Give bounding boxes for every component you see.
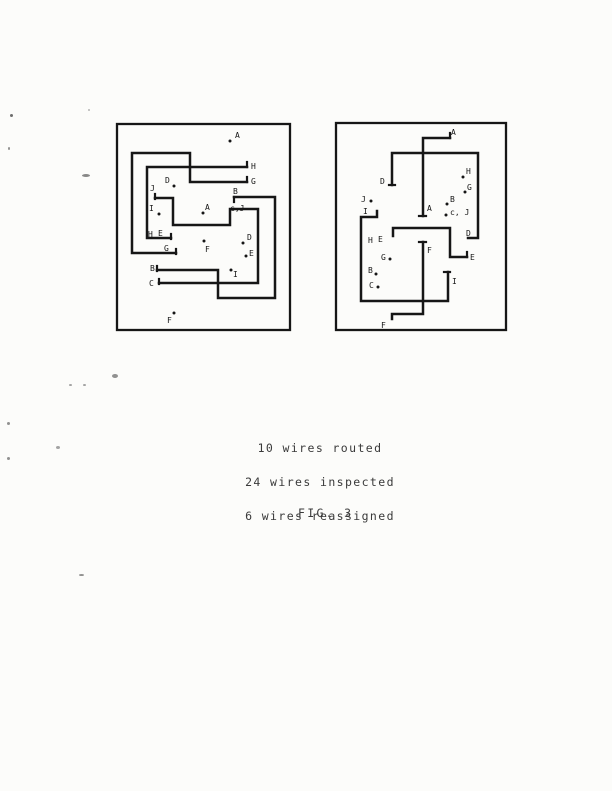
- pin-label: G: [381, 253, 386, 262]
- figure-caption: 10 wires routed 24 wires inspected 6 wir…: [237, 420, 403, 545]
- pin-label: A: [235, 131, 240, 140]
- pin-dot: [173, 185, 176, 188]
- figure-number: FIG. 3: [298, 506, 353, 520]
- pin-label: I: [452, 277, 457, 286]
- pin-label: C: [149, 279, 154, 288]
- pin-label: A: [451, 128, 456, 137]
- scanned-paper-page: AHGDJIBAc,JHEGBCFDEIFADHGBc, JAJIHEGBCDE…: [0, 0, 612, 791]
- scan-speck: [56, 446, 60, 449]
- scan-speck: [10, 114, 13, 117]
- pin-dot: [229, 140, 232, 143]
- figure-canvas: AHGDJIBAc,JHEGBCFDEIFADHGBc, JAJIHEGBCDE…: [0, 0, 612, 791]
- pin-label: A: [205, 203, 210, 212]
- pin-label: C: [369, 281, 374, 290]
- scan-speck: [112, 374, 118, 378]
- pin-dot: [377, 286, 380, 289]
- pin-label: G: [164, 244, 169, 253]
- pin-label: D: [165, 176, 170, 185]
- pin-label: G: [251, 177, 256, 186]
- pin-label: F: [167, 316, 172, 325]
- scan-speck: [8, 147, 10, 150]
- pin-label: J: [150, 184, 155, 193]
- pin-dot: [173, 312, 176, 315]
- pin-label: H: [368, 236, 373, 245]
- pin-label: I: [233, 270, 238, 279]
- wire-F: [392, 242, 423, 319]
- pin-label: H: [148, 230, 153, 239]
- pin-label: E: [378, 235, 383, 244]
- pin-label: D: [247, 233, 252, 242]
- wire-D: [392, 153, 478, 238]
- pin-label: c,J: [230, 204, 244, 213]
- pin-dot: [389, 258, 392, 261]
- pin-label: H: [251, 162, 256, 171]
- pin-label: E: [249, 249, 254, 258]
- pin-label: B: [368, 266, 373, 275]
- pin-dot: [462, 176, 465, 179]
- pin-label: D: [380, 177, 385, 186]
- pin-label: F: [205, 245, 210, 254]
- pin-label: F: [381, 321, 386, 330]
- pin-dot: [242, 242, 245, 245]
- pin-dot: [203, 240, 206, 243]
- pin-label: E: [158, 229, 163, 238]
- pin-label: H: [466, 167, 471, 176]
- pin-label: G: [467, 183, 472, 192]
- pin-dot: [446, 203, 449, 206]
- pin-label: E: [470, 253, 475, 262]
- pin-dot: [370, 200, 373, 203]
- caption-line-routed: 10 wires routed: [237, 443, 403, 454]
- scan-speck: [7, 457, 10, 460]
- caption-line-inspected: 24 wires inspected: [237, 477, 403, 488]
- scan-speck: [79, 574, 84, 576]
- scan-speck: [88, 109, 90, 111]
- pin-dot: [445, 214, 448, 217]
- right-wiring-diagram: ADHGBc, JAJIHEGBCDEFIF: [336, 123, 506, 330]
- left-wiring-diagram: AHGDJIBAc,JHEGBCFDEIF: [117, 124, 290, 330]
- scan-speck: [7, 422, 10, 425]
- pin-dot: [158, 213, 161, 216]
- pin-label: I: [149, 204, 154, 213]
- wire-I: [361, 211, 448, 301]
- scan-speck: [69, 384, 72, 386]
- pin-label: F: [427, 246, 432, 255]
- pin-dot: [375, 273, 378, 276]
- pin-label: B: [233, 187, 238, 196]
- pin-label: D: [466, 229, 471, 238]
- scan-speck: [82, 174, 90, 177]
- pin-label: c, J: [450, 208, 469, 217]
- pin-label: I: [363, 207, 368, 216]
- wire-H: [147, 167, 247, 238]
- pin-label: B: [450, 195, 455, 204]
- pin-label: J: [361, 195, 366, 204]
- pin-label: B: [150, 264, 155, 273]
- pin-label: A: [427, 204, 432, 213]
- pin-dot: [245, 255, 248, 258]
- scan-speck: [83, 384, 86, 386]
